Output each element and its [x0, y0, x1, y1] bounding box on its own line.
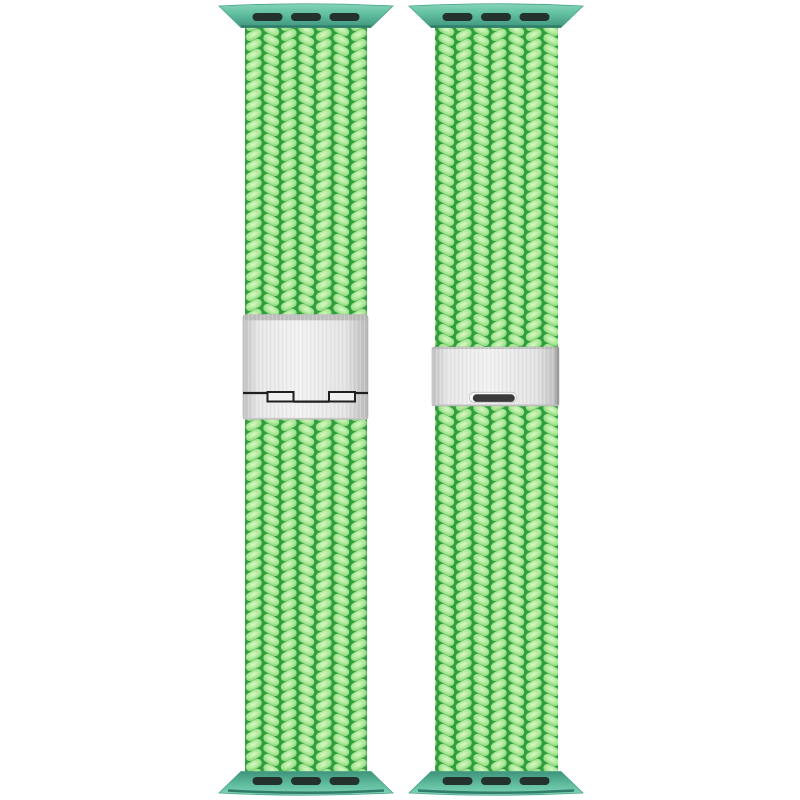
- lug-adapter-top-right: [409, 4, 583, 28]
- watch-band-right: [409, 4, 583, 796]
- adapter-slot: [481, 777, 511, 785]
- hinge-knuckle: [329, 392, 355, 402]
- adapter-slots: [443, 777, 550, 785]
- adapter-slots: [253, 777, 360, 785]
- adapter-slot: [253, 13, 283, 21]
- adapter-slot: [520, 13, 550, 21]
- adapter-slot: [330, 777, 360, 785]
- adapter-slot: [253, 777, 283, 785]
- buckle-slot-opening: [473, 394, 515, 402]
- adapter-slot: [481, 13, 511, 21]
- buckle-slot: [470, 392, 517, 402]
- lug-adapter-bottom-left: [219, 772, 393, 796]
- adapter-slot: [330, 13, 360, 21]
- slide-buckle: [432, 347, 559, 406]
- fold-over-clasp: [243, 315, 368, 420]
- adapter-slot: [443, 13, 473, 21]
- adapter-slot: [291, 777, 321, 785]
- lug-adapter-bottom-right: [409, 772, 583, 796]
- adapter-slot: [520, 777, 550, 785]
- watch-bands-image: [0, 0, 800, 800]
- adapter-slot: [291, 13, 321, 21]
- adapter-slot: [443, 777, 473, 785]
- adapter-slots: [443, 13, 550, 21]
- clasp-brushed-texture: [243, 315, 368, 420]
- product-photo: [0, 0, 800, 800]
- hinge-knuckle: [268, 392, 294, 402]
- adapter-slots: [253, 13, 360, 21]
- lug-adapter-top-left: [219, 4, 393, 28]
- watch-band-left: [219, 4, 393, 796]
